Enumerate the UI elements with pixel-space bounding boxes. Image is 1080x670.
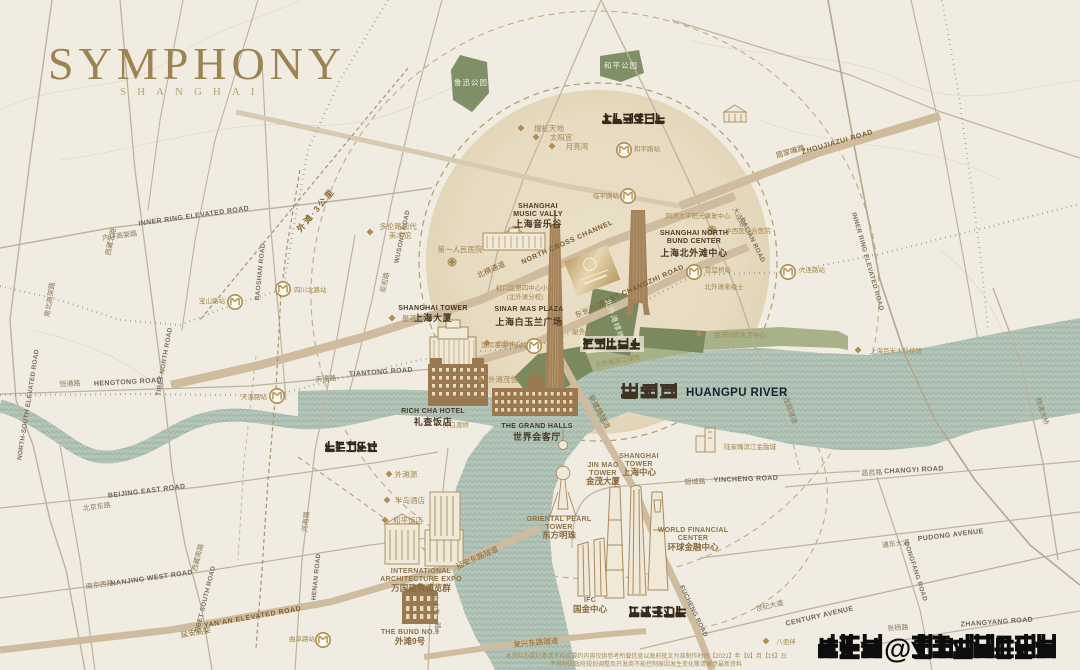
svg-text:环球金融中心: 环球金融中心 [667, 542, 719, 552]
svg-text:SHANGHAI NORTH: SHANGHAI NORTH [660, 230, 728, 237]
svg-text:提篮桥站: 提篮桥站 [705, 265, 732, 274]
svg-text:金茂大厦: 金茂大厦 [585, 476, 621, 486]
svg-text:THE GRAND HALLS: THE GRAND HALLS [501, 423, 572, 430]
svg-text:IFC: IFC [584, 597, 596, 604]
svg-text:THE BUND NO.9: THE BUND NO.9 [381, 629, 439, 636]
svg-text:四川北路站: 四川北路站 [294, 285, 327, 294]
svg-text:CENTER: CENTER [678, 535, 709, 542]
svg-text:上海中心: 上海中心 [622, 467, 657, 477]
svg-text:星外滩: 星外滩 [572, 327, 592, 336]
svg-text:ORIENTAL PEARL: ORIENTAL PEARL [527, 516, 592, 523]
svg-text:临平路站: 临平路站 [593, 191, 620, 200]
svg-text:中西医结合医院: 中西医结合医院 [725, 226, 771, 235]
svg-text:太阳宫: 太阳宫 [550, 132, 573, 142]
svg-text:上海白玉兰广场: 上海白玉兰广场 [495, 316, 562, 327]
svg-text:陆家嘴滨江金融城: 陆家嘴滨江金融城 [724, 442, 777, 451]
svg-text:INTERNATIONAL: INTERNATIONAL [391, 568, 452, 575]
svg-text:@: @ [884, 633, 911, 664]
svg-text:SINAR MAS PLAZA: SINAR MAS PLAZA [494, 306, 563, 313]
svg-text:东方明珠: 东方明珠 [542, 530, 577, 540]
svg-text:同济大学阳光康复中心: 同济大学阳光康复中心 [666, 211, 732, 220]
svg-text:鲁迅公园: 鲁迅公园 [454, 77, 488, 87]
svg-text:和平公园: 和平公园 [604, 61, 638, 70]
svg-text:上海大厦: 上海大厦 [414, 312, 453, 323]
svg-text:天潼路站: 天潼路站 [241, 392, 268, 401]
svg-text:JIN MAO: JIN MAO [587, 462, 619, 469]
svg-text:外滩9号: 外滩9号 [394, 636, 426, 646]
svg-text:HUANGPU RIVER: HUANGPU RIVER [686, 387, 788, 399]
svg-text:外滩茂悦: 外滩茂悦 [488, 374, 518, 384]
svg-text:美术馆: 美术馆 [389, 230, 412, 240]
svg-text:不排除因政府规划调整及开发商不能控制原因发生变化敬请留意最新: 不排除因政府规划调整及开发商不能控制原因发生变化敬请留意最新资料 [550, 660, 742, 668]
svg-text:RICH CHA HOTEL: RICH CHA HOTEL [401, 408, 465, 415]
svg-text:本资料为要约邀请不构成要约内容仅供参考所载信息以政府批文为准: 本资料为要约邀请不构成要约内容仅供参考所载信息以政府批文为准制作时间【2021】… [505, 652, 786, 660]
svg-text:虹口区第四中心小学: 虹口区第四中心小学 [496, 283, 555, 292]
svg-text:上海百米水科技馆: 上海百米水科技馆 [870, 346, 923, 355]
svg-text:SHANGHAI: SHANGHAI [120, 86, 265, 98]
svg-text:金茂时尚生活中心: 金茂时尚生活中心 [714, 330, 767, 339]
svg-text:北外滩来福士: 北外滩来福士 [705, 282, 745, 291]
svg-text:上海北外滩中心: 上海北外滩中心 [660, 247, 727, 258]
svg-text:和平饭店: 和平饭店 [393, 515, 423, 525]
svg-text:MUSIC VALLY: MUSIC VALLY [513, 211, 563, 218]
svg-text:国金中心: 国金中心 [573, 604, 608, 614]
svg-text:SHANGHAI: SHANGHAI [619, 453, 659, 460]
svg-text:(北外滩分校): (北外滩分校) [507, 292, 544, 301]
svg-text:月亮湾: 月亮湾 [566, 141, 589, 151]
svg-text:外滩源: 外滩源 [395, 469, 418, 479]
svg-text:万国建筑博览群: 万国建筑博览群 [390, 583, 451, 593]
svg-text:多伦路现代: 多伦路现代 [379, 221, 417, 231]
svg-text:SHANGHAI TOWER: SHANGHAI TOWER [398, 305, 467, 312]
svg-text:礼查饭店: 礼查饭店 [414, 416, 452, 427]
svg-text:第一人民医院: 第一人民医院 [438, 244, 483, 254]
svg-text:曲阜路站: 曲阜路站 [289, 634, 316, 643]
svg-text:和平路站: 和平路站 [634, 144, 661, 153]
svg-text:ARCHITECTURE EXPO: ARCHITECTURE EXPO [380, 576, 462, 583]
svg-text:上海音乐谷: 上海音乐谷 [514, 218, 562, 229]
svg-text:华馨中心: 华馨中心 [496, 339, 523, 348]
svg-text:宝山路站: 宝山路站 [199, 296, 226, 305]
svg-text:BUND CENTER: BUND CENTER [667, 238, 721, 245]
svg-text:WORLD FINANCIAL: WORLD FINANCIAL [658, 527, 729, 534]
svg-text:半岛酒店: 半岛酒店 [395, 495, 425, 505]
svg-text:SHANGHAI: SHANGHAI [518, 203, 558, 210]
svg-text:世界会客厅: 世界会客厅 [513, 431, 561, 442]
svg-text:瑞虹天地: 瑞虹天地 [534, 123, 564, 133]
svg-text:八佰伴: 八佰伴 [776, 637, 796, 646]
svg-text:SYMPHONY: SYMPHONY [48, 38, 346, 89]
svg-text:大连路站: 大连路站 [799, 265, 826, 274]
